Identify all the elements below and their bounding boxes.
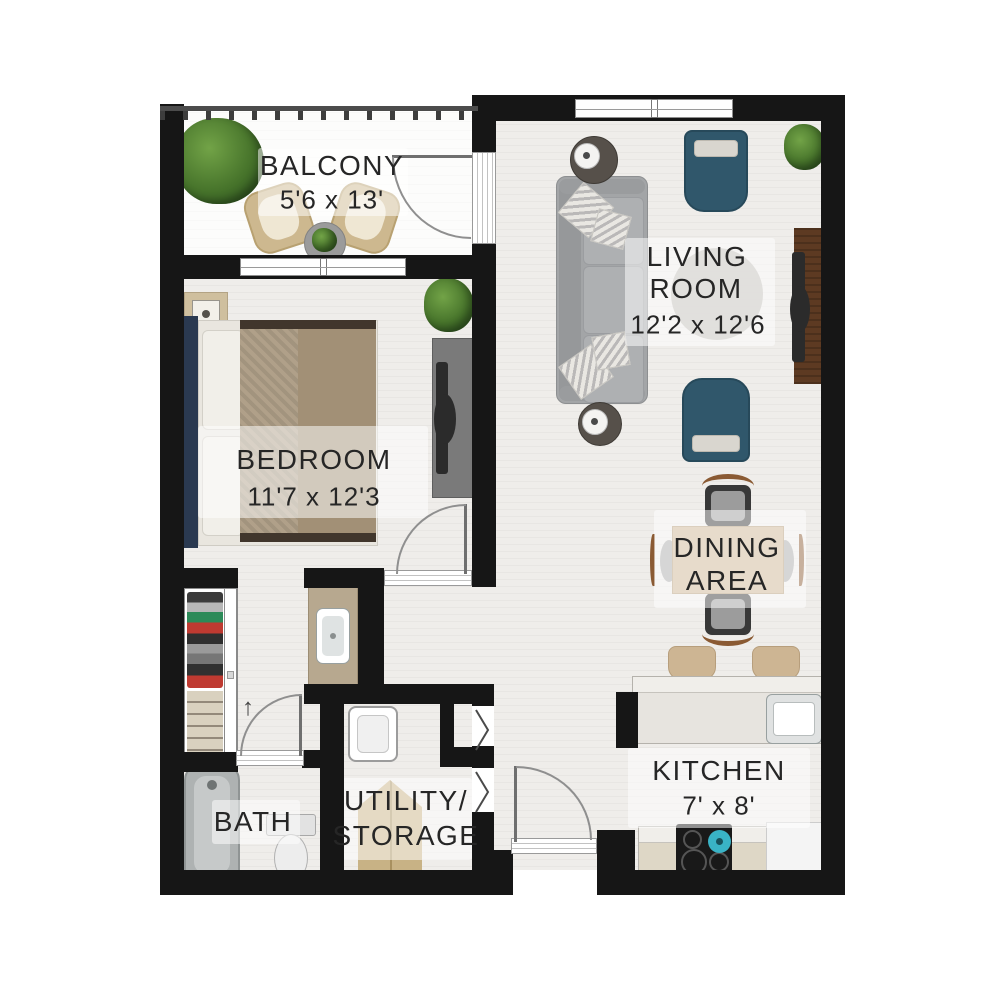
burner-icon [683, 830, 702, 849]
balcony-label: BALCONY [260, 150, 404, 182]
balcony-railing-ticks [160, 111, 478, 120]
living-room-label-line1: LIVING [647, 241, 748, 273]
balcony-table-plant-icon [312, 228, 337, 252]
armchair-top [684, 130, 748, 212]
wall [160, 104, 184, 895]
bedroom-label: BEDROOM [236, 444, 391, 476]
wall [302, 750, 322, 768]
wall [494, 850, 513, 895]
closet-clothes [187, 592, 223, 688]
closet-shelves [187, 691, 223, 756]
bed-trim [240, 320, 376, 329]
dining-area-label-line2: AREA [686, 565, 768, 597]
kettle-icon [708, 830, 731, 853]
balcony-door-threshold [472, 152, 496, 244]
armchair-cushion [692, 435, 740, 452]
washer [348, 706, 398, 762]
bar-stool [668, 646, 716, 680]
kitchen-dims: 7' x 8' [682, 791, 755, 822]
bar-stool [752, 646, 800, 680]
wall [320, 700, 344, 895]
wall [160, 752, 238, 772]
living-window [575, 99, 733, 118]
side-table-bottom [578, 402, 622, 446]
armchair-bottom [682, 378, 750, 462]
living-plant-icon [784, 124, 826, 170]
balcony-tree-icon [176, 118, 264, 204]
kitchen-label: KITCHEN [652, 755, 785, 787]
entry-door-threshold [511, 838, 597, 854]
floor-plan: ↑ [0, 0, 1000, 1000]
wall [472, 255, 496, 587]
living-tv-icon [790, 286, 810, 332]
utility-label-line2: STORAGE [333, 820, 480, 852]
bifold-door-icon [473, 704, 493, 816]
bed-pillow [202, 330, 244, 430]
armchair-cushion [694, 140, 738, 157]
bedroom-dims: 11'7 x 12'3 [247, 482, 380, 513]
utility-label-line1: UTILITY/ [344, 785, 468, 817]
burner-icon [709, 852, 729, 872]
living-room-dims: 12'2 x 12'6 [630, 310, 765, 341]
vanity-sink [316, 608, 350, 664]
kitchen-sink [766, 694, 822, 744]
closet-sliding-door [224, 589, 237, 759]
side-table-top [570, 136, 618, 184]
bed-headboard [182, 316, 198, 548]
closet-arrow: ↑ [242, 696, 254, 720]
wall [821, 95, 845, 895]
bathtub-faucet-icon [207, 780, 217, 790]
living-room-label-line2: ROOM [649, 273, 742, 305]
balcony-dims: 5'6 x 13' [280, 185, 384, 216]
dining-area-label-line1: DINING [674, 532, 781, 564]
bedroom-window [240, 258, 406, 276]
wall [160, 568, 238, 588]
wall [597, 830, 635, 895]
bed-trim [240, 533, 376, 542]
vanity-sink-drain-icon [330, 633, 336, 639]
bath-label: BATH [214, 806, 293, 838]
kitchen-sink-basin [773, 702, 815, 736]
bedroom-plant-icon [424, 278, 474, 332]
bedroom-tv-icon [434, 394, 456, 444]
wall [616, 692, 638, 748]
